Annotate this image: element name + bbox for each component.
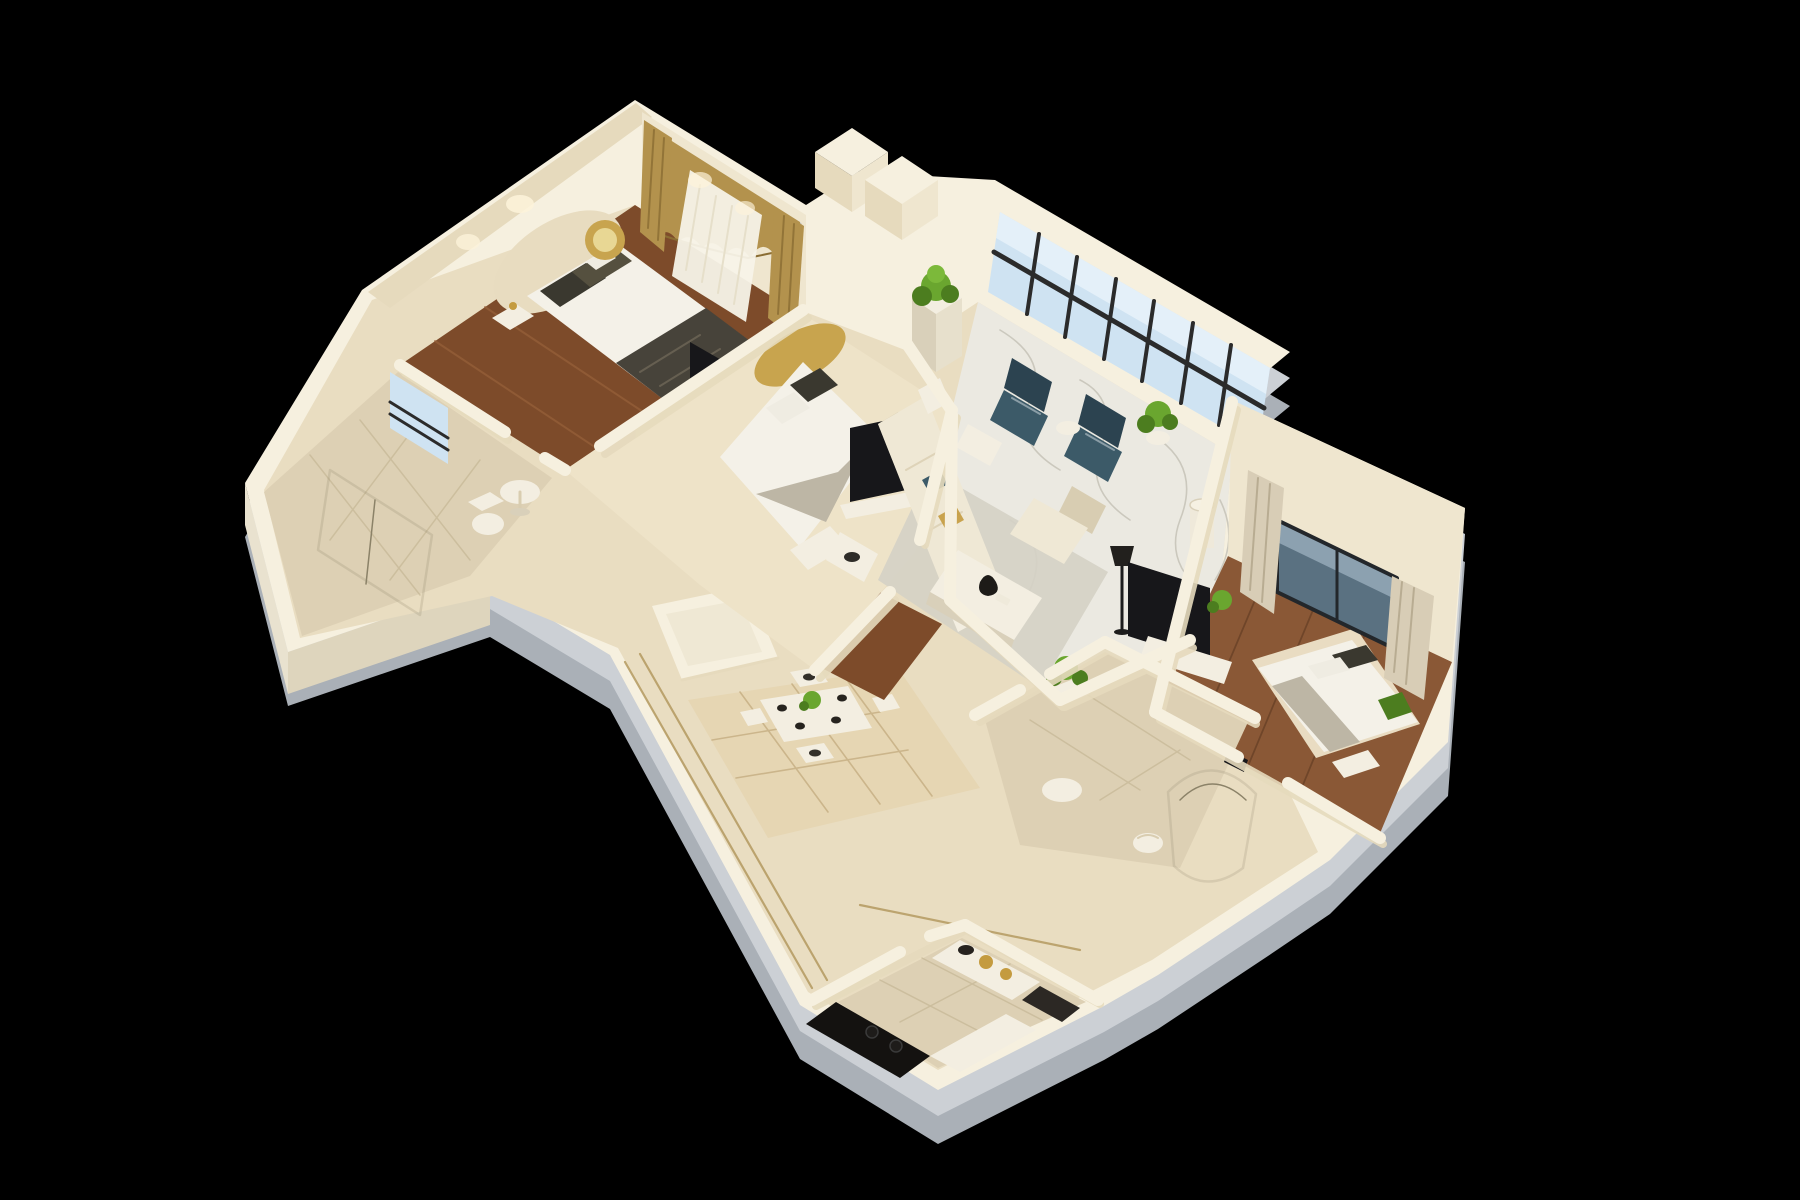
apartment-isometric-scene xyxy=(0,0,1800,1200)
dining-centerpiece-plant xyxy=(799,701,809,711)
floor-plan-render: 3D isometric cutaway render of a furnish… xyxy=(0,0,1800,1200)
dark-pan xyxy=(958,945,974,955)
hall-table-base xyxy=(510,508,530,516)
ceiling-light-glow xyxy=(735,201,755,215)
nightstand-lamp xyxy=(509,302,517,310)
round-side-table xyxy=(1042,778,1082,802)
ceiling-light-glow xyxy=(456,234,480,250)
ceiling-light-glow xyxy=(506,195,534,213)
window-side-table xyxy=(1056,421,1080,435)
toilet xyxy=(472,513,504,535)
gold-wall-mirror-center xyxy=(593,228,617,252)
ceiling-light-glow xyxy=(688,172,712,188)
